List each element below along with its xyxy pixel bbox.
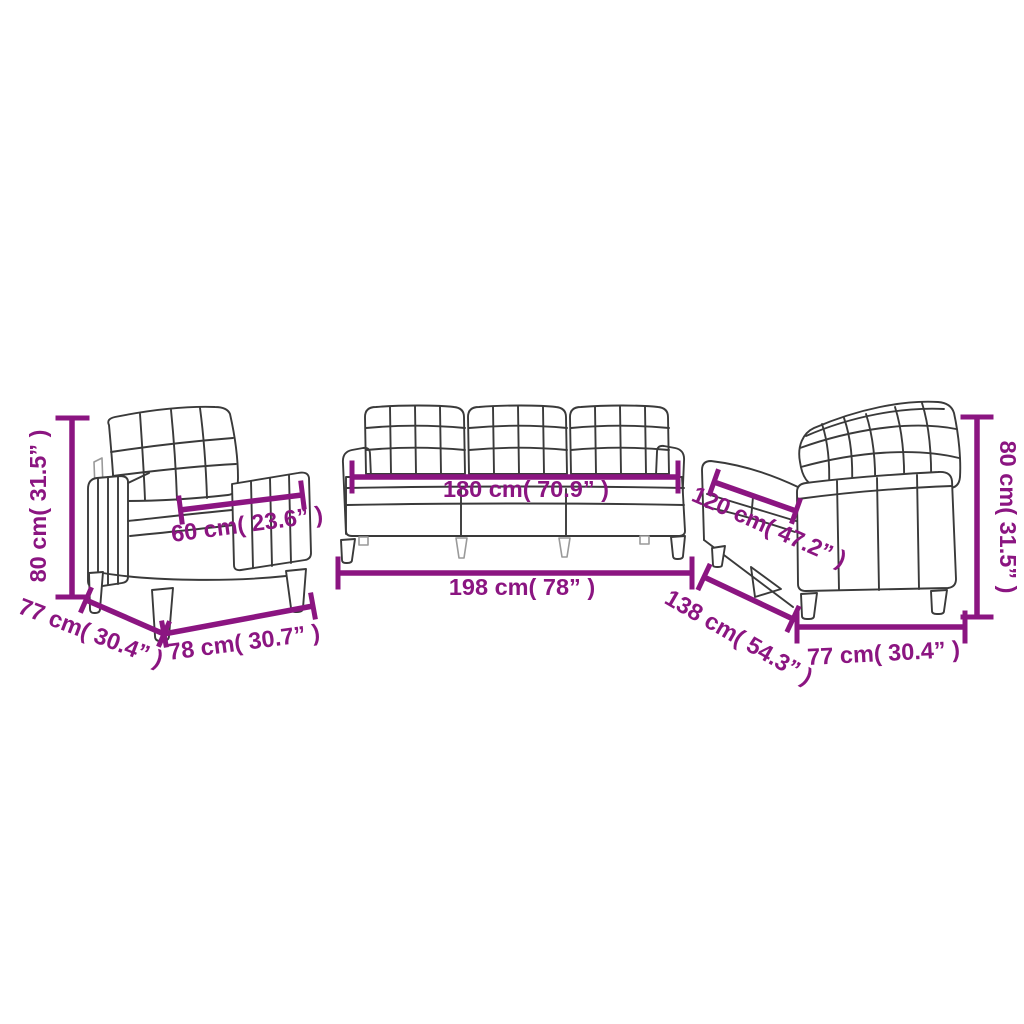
armchair-width-label: 78 cm( 30.7” ) [166, 619, 321, 665]
sofa3-back-cushions [365, 406, 669, 475]
sofa-set-dimension-diagram: 80 cm( 31.5” ) 60 cm( 23.6” ) 77 cm( 30.… [0, 0, 1024, 1024]
diagram-svg: 80 cm( 31.5” ) 60 cm( 23.6” ) 77 cm( 30.… [0, 0, 1024, 1024]
armchair-height-dimension: 80 cm( 31.5” ) [25, 418, 87, 597]
dimension-tick [311, 595, 315, 617]
sofa2-width-label: 138 cm( 54.3” ) [661, 584, 818, 689]
armchair-depth-dimension: 77 cm( 30.4” ) [15, 590, 169, 673]
sofa3-width-dimension: 198 cm( 78” ) [338, 559, 692, 600]
sofa3-width-label: 198 cm( 78” ) [449, 574, 595, 600]
sofa2-height-label: 80 cm( 31.5” ) [995, 441, 1021, 594]
dimension-tick [179, 498, 182, 522]
armchair-height-label: 80 cm( 31.5” ) [25, 430, 51, 583]
sofa2-depth-label: 77 cm( 30.4” ) [807, 636, 961, 670]
sofa2-height-dimension: 80 cm( 31.5” ) [963, 417, 1021, 617]
sofa2-depth-dimension: 77 cm( 30.4” ) [797, 613, 965, 670]
sofa3-legs [341, 536, 685, 563]
sofa3-seat-width-label: 180 cm( 70.9” ) [443, 476, 609, 502]
sofa2-width-dimension: 138 cm( 54.3” ) [661, 566, 818, 690]
